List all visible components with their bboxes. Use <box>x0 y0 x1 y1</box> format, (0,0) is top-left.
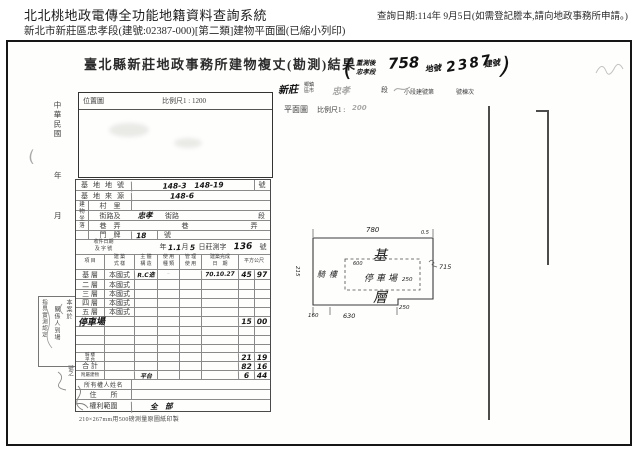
table-cell <box>134 290 157 298</box>
margin-month-label: 月 <box>54 210 62 221</box>
table-cell: ~ <box>157 270 179 279</box>
table-row: 基 層本國式R.C造~70.10.274597 <box>76 270 270 280</box>
table-row: 街路及忠孝街路段 <box>76 211 270 221</box>
table-row: 三 層本國式 <box>76 290 270 299</box>
table-cell <box>134 280 157 289</box>
table-cell <box>179 336 201 344</box>
building-location-group-label: 建物坐落 <box>77 201 85 240</box>
table-cell: 騎 樓 平 台 <box>76 353 104 361</box>
dim-corner: 0.5 <box>421 230 429 236</box>
table-cell: 忠孝 <box>131 211 159 221</box>
table-cell: 全 部 <box>131 398 269 413</box>
handwritten-scribble <box>40 300 76 366</box>
parking-label: 停車場 <box>364 273 400 284</box>
table-cell: 號 <box>157 231 181 239</box>
table-cell <box>179 362 201 370</box>
table-cell <box>181 231 269 239</box>
table-cell <box>179 299 201 307</box>
page-root: 北北桃地政電傳全功能地籍資料查詢系統 新北市新莊區忠孝段(建號:02387-00… <box>0 0 640 453</box>
table-cell: 三 層 <box>76 290 104 298</box>
table-cell <box>134 299 157 307</box>
table-cell <box>238 327 254 335</box>
table-cell <box>238 299 254 307</box>
table-cell: 45 <box>238 270 254 279</box>
table-cell: 本國式 <box>104 290 134 298</box>
table-cell <box>157 345 179 352</box>
dim-top: 780 <box>366 226 380 234</box>
table-cell <box>254 336 269 344</box>
table-row <box>76 336 270 345</box>
location-map-label: 位置圖 <box>79 96 104 106</box>
table-cell <box>238 308 254 316</box>
margin-era-label: 中華民國 <box>52 101 63 139</box>
table-cell: 收件日期 及 字 號 <box>76 240 131 254</box>
table-cell: 段 <box>254 211 269 220</box>
table-cell: 建 築 式 樣 <box>104 255 134 269</box>
table-cell: 本國式 <box>104 308 134 316</box>
table-cell: 19 <box>254 353 269 361</box>
table-cell: 1 <box>176 240 181 254</box>
table-cell <box>179 317 201 326</box>
remeasure-open-paren: ( <box>342 54 353 83</box>
floor-plan-scale-label: 比例尺1 : <box>317 105 345 115</box>
table-cell: 基地來源 <box>76 191 131 200</box>
table-cell <box>201 345 238 352</box>
table-cell: 本國式 <box>104 270 134 279</box>
table-cell <box>238 345 254 352</box>
table-row: 合 計8216 <box>76 362 270 371</box>
table-cell: 18 <box>131 231 157 240</box>
table-row: 門 牌18號 <box>76 231 270 240</box>
table-cell: 所有權人姓名 <box>76 380 131 389</box>
handwritten-scribble <box>592 55 626 81</box>
floor-plan-scale-value: 200 <box>352 104 367 112</box>
dim-right: 715 <box>439 263 451 271</box>
handwritten-scribble <box>429 260 437 267</box>
scan-smudge <box>174 138 202 148</box>
table-cell: 16 <box>254 362 269 370</box>
table-cell: 年 <box>158 240 168 254</box>
table-cell <box>104 336 134 344</box>
table-row: 所有權人姓名 <box>76 380 270 390</box>
table-cell <box>134 362 157 370</box>
table-cell: 使 用 種 類 <box>157 255 179 269</box>
survey-table: 基地地號148-3 148-19號基地來源148-6村 里街路及忠孝街路段巷 弄… <box>75 179 271 412</box>
query-date: 查詢日期:114年 9月5日(如需登記謄本,請向地政事務所申請。) <box>377 8 628 22</box>
location-map-header: 位置圖 比例尺1 : 1200 <box>79 93 272 110</box>
table-cell <box>76 336 104 344</box>
remeasure-note: ( 重測後 忠孝段 758 地號 2387 建號 ) <box>343 54 523 90</box>
margin-year-label: 年 <box>54 170 62 181</box>
table-cell <box>201 336 238 344</box>
table-cell <box>201 280 238 289</box>
table-cell <box>201 362 238 370</box>
table-cell <box>179 270 201 279</box>
remeasure-close-paren: ) <box>500 52 511 80</box>
table-cell: 平方公尺 <box>238 255 269 269</box>
table-cell <box>134 336 157 344</box>
remeasure-lot-number: 758 <box>388 53 420 73</box>
township-label: 鄉鎮 區市 <box>304 83 314 96</box>
table-cell <box>104 353 134 361</box>
table-cell <box>179 280 201 289</box>
remeasure-line2: 忠孝段 <box>356 66 376 76</box>
table-cell <box>104 327 134 335</box>
table-cell <box>104 345 134 352</box>
scan-smudge <box>109 123 149 137</box>
dim-inner-top: 600 <box>353 261 363 267</box>
table-cell: 街路及 <box>88 211 131 220</box>
vertical-stroke-mark <box>488 106 490 420</box>
table-cell: 6 <box>238 371 254 379</box>
table-cell <box>104 371 134 379</box>
table-cell: 管 理 使 用 <box>179 255 201 269</box>
table-row: 五 層本國式 <box>76 308 270 317</box>
table-cell <box>254 345 269 352</box>
dim-step: 250 <box>399 305 410 311</box>
table-cell: 15 <box>238 317 254 326</box>
table-cell <box>131 380 269 389</box>
table-cell <box>104 362 134 370</box>
table-cell <box>201 308 238 316</box>
system-title: 北北桃地政電傳全功能地籍資料查詢系統 <box>24 5 267 24</box>
location-map-scale: 比例尺1 : 1200 <box>162 96 206 106</box>
table-cell: 基地地號 <box>76 180 131 190</box>
table-cell <box>134 327 157 335</box>
paper-spec-note: 210×267mm用500磅測量原圖紙印製 <box>79 414 179 423</box>
table-cell <box>254 290 269 298</box>
table-cell <box>179 290 201 298</box>
table-cell <box>134 317 157 326</box>
document-title: 臺北縣新莊地政事務所建物複丈(勘測)結果 <box>84 54 357 73</box>
floor-char-bottom: 層 <box>373 290 389 306</box>
table-cell: R.C造 <box>134 270 157 280</box>
table-cell <box>201 353 238 361</box>
table-row: 四 層本國式 <box>76 299 270 308</box>
table-cell: 平台 <box>134 371 157 380</box>
table-cell <box>131 201 269 210</box>
floor-plan-sketch: 780 0.5 715 600 250 250 160 630 215 基 層 … <box>290 215 475 327</box>
table-cell: 基 層 <box>76 270 104 279</box>
table-cell: 月 <box>181 240 189 254</box>
dim-inner-right: 250 <box>402 277 413 283</box>
table-cell: 本國式 <box>104 280 134 289</box>
table-cell <box>179 308 201 316</box>
table-cell: 本國式 <box>104 299 134 307</box>
table-cell <box>134 353 157 361</box>
table-cell <box>157 336 179 344</box>
table-row: 基地來源148-6 <box>76 191 270 201</box>
table-cell: 44 <box>254 371 269 379</box>
table-cell: 附屬建物 <box>76 371 104 379</box>
township-handwritten: 新莊 <box>278 80 299 96</box>
table-row: 二 層本國式 <box>76 280 270 290</box>
table-row <box>76 327 270 336</box>
dim-bottom: 630 <box>343 312 355 320</box>
table-cell: 項 目 <box>76 255 104 269</box>
table-row: 村 里 <box>76 201 270 211</box>
vertical-stroke-hook <box>536 110 548 112</box>
table-cell <box>254 299 269 307</box>
table-cell: 148-6 <box>131 189 269 202</box>
floor-plan-label: 平面圖 <box>284 104 308 115</box>
table-cell <box>134 308 157 316</box>
table-cell <box>157 317 179 326</box>
table-cell: 弄 <box>239 221 269 230</box>
table-cell <box>201 327 238 335</box>
table-cell: 停車場 <box>76 316 104 326</box>
table-cell: 巷 弄 <box>88 221 131 230</box>
table-cell: 21 <box>238 353 254 361</box>
table-cell <box>201 299 238 307</box>
table-cell <box>179 345 201 352</box>
table-cell: 97 <box>254 270 269 279</box>
dim-left: 215 <box>294 266 300 277</box>
table-cell: 四 層 <box>76 299 104 307</box>
table-cell <box>238 290 254 298</box>
table-cell: 權利範圍 <box>76 400 131 411</box>
table-cell <box>157 362 179 370</box>
table-cell: 70.10.27 <box>201 270 238 280</box>
table-cell: 巷 <box>131 221 239 230</box>
vertical-stroke-mark <box>547 110 549 265</box>
table-cell: 村 里 <box>88 201 131 210</box>
table-cell: 主 體 構 造 <box>134 255 157 269</box>
floor-char-top: 基 <box>373 248 389 264</box>
table-cell <box>104 317 134 326</box>
table-cell: 5 <box>189 240 196 254</box>
table-cell <box>157 371 179 379</box>
table-cell <box>201 371 238 379</box>
table-cell: 00 <box>254 317 269 326</box>
table-cell <box>254 308 269 316</box>
table-cell <box>179 371 201 379</box>
table-cell <box>254 327 269 335</box>
system-subtitle: 新北市新莊區忠孝段(建號:02387-000)[第二類]建物平面圖(已縮小列印) <box>24 23 345 38</box>
table-cell: 合 計 <box>76 362 104 370</box>
table-cell <box>131 240 158 254</box>
table-cell: 號 <box>257 240 269 254</box>
remeasure-lot-label: 地號 <box>424 62 441 75</box>
dim-bottom-left: 160 <box>308 313 319 319</box>
table-cell <box>131 390 269 399</box>
arcade-label: 騎樓 <box>317 270 341 279</box>
table-cell <box>157 353 179 361</box>
table-cell <box>238 280 254 289</box>
table-cell: 82 <box>238 362 254 370</box>
table-cell: 136 <box>229 240 257 255</box>
table-cell <box>238 336 254 344</box>
table-row: 項 目建 築 式 樣主 體 構 造使 用 種 類管 理 使 用建築完成 日 期平… <box>76 255 270 270</box>
table-cell <box>157 280 179 289</box>
table-cell: 日莊測字 <box>196 240 229 254</box>
table-cell <box>134 345 157 352</box>
table-row: 收件日期 及 字 號年1.1月5日莊測字136號 <box>76 240 270 255</box>
table-cell <box>157 290 179 298</box>
table-cell <box>254 280 269 289</box>
table-cell <box>185 211 254 220</box>
table-cell: 門 牌 <box>88 231 131 239</box>
table-row: 停車場1500 <box>76 317 270 327</box>
table-cell <box>157 299 179 307</box>
table-cell <box>157 327 179 335</box>
table-cell: 建築完成 日 期 <box>201 255 238 269</box>
remeasure-building-label: 建號 <box>483 57 500 70</box>
table-cell <box>201 290 238 298</box>
table-cell: 住 所 <box>76 390 131 399</box>
table-row: 權利範圍全 部 <box>76 400 270 411</box>
table-cell <box>179 353 201 361</box>
table-cell: 二 層 <box>76 280 104 289</box>
table-row: 附屬建物平台644 <box>76 371 270 380</box>
table-cell <box>157 308 179 316</box>
table-cell: 街路 <box>159 211 185 220</box>
table-cell <box>179 327 201 335</box>
table-cell <box>201 317 238 326</box>
location-map-box: 位置圖 比例尺1 : 1200 <box>78 92 273 178</box>
